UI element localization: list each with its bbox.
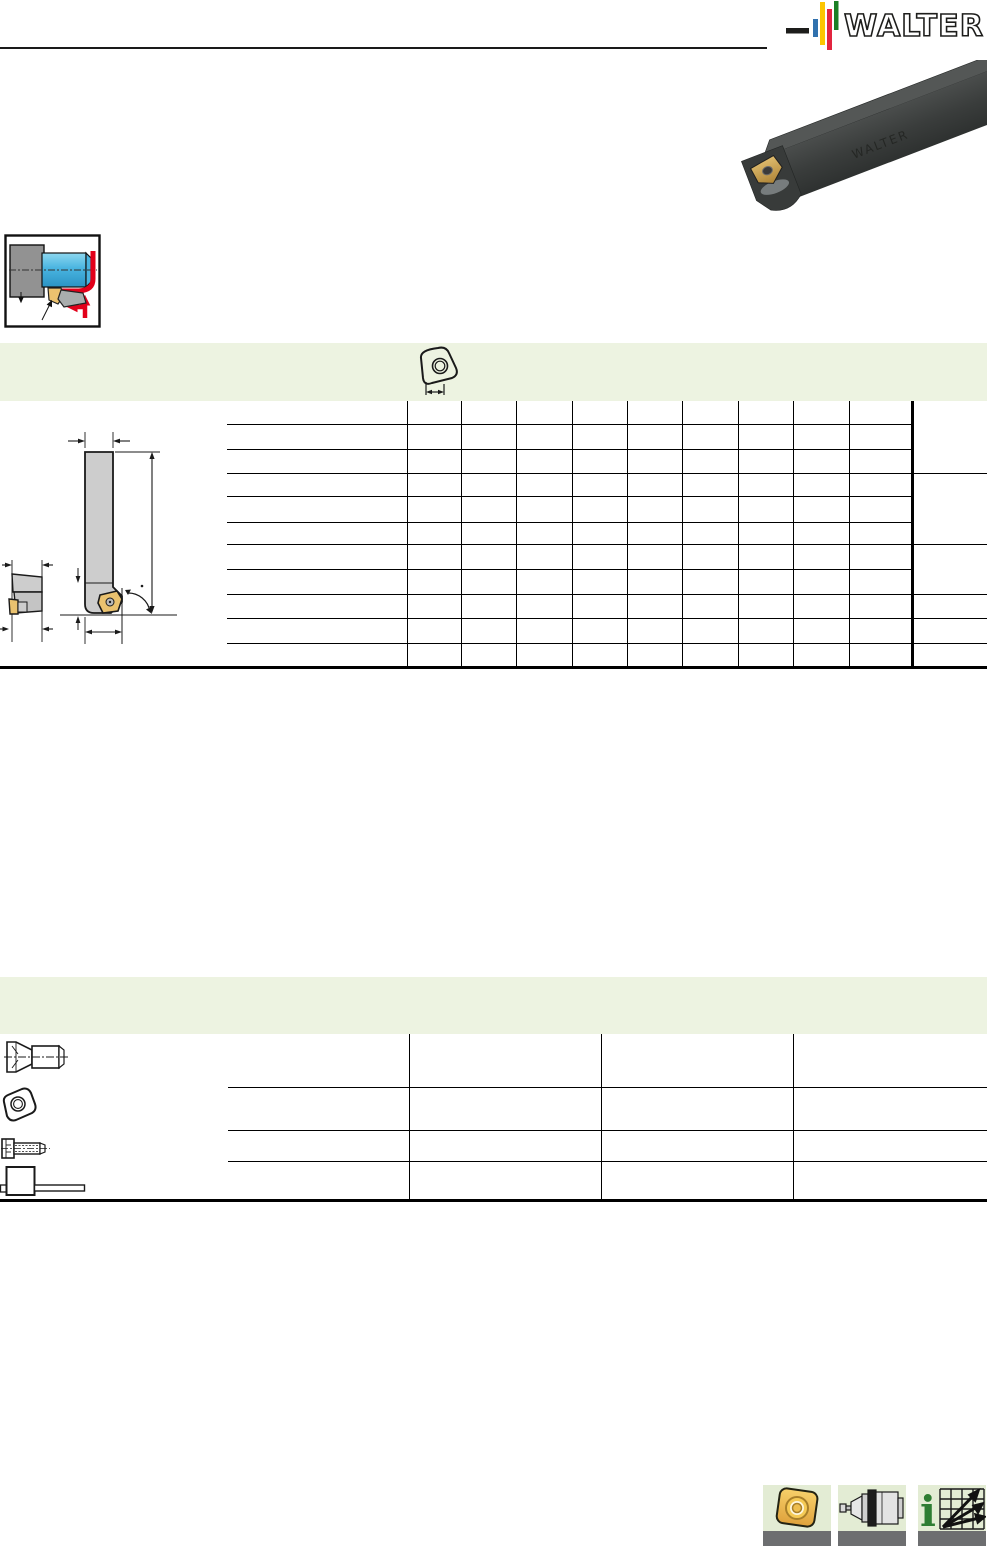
grid-line	[793, 401, 794, 667]
grid-line	[682, 401, 683, 667]
trigon-insert-dimension-icon	[416, 345, 464, 397]
trigon-insert-icon	[2, 1086, 38, 1128]
grid-line	[572, 401, 573, 667]
catalog-page: WALTER WALTER	[0, 0, 987, 1547]
grid-line	[227, 569, 912, 570]
grid-line	[227, 544, 912, 545]
cutting-data-info-icon-tile: i	[918, 1485, 986, 1546]
grid-line	[227, 473, 912, 474]
countersunk-screw-icon	[4, 1038, 70, 1078]
logo-bar-blue	[813, 19, 818, 37]
grid-line	[849, 401, 850, 667]
technical-drawing	[0, 420, 230, 670]
spec-table-header-banner	[0, 343, 987, 401]
grid-line	[911, 401, 914, 667]
product-photo-toolholder: WALTER	[740, 60, 987, 220]
clamping-screw-icon	[1, 1137, 51, 1161]
cutting-data-info-icon: i	[918, 1485, 986, 1531]
grid-line	[227, 594, 912, 595]
torque-wrench-icon	[0, 1165, 90, 1199]
turning-application-pictogram	[4, 234, 101, 328]
grid-line	[0, 1199, 987, 1202]
grid-line	[227, 496, 912, 497]
tile-bar	[838, 1531, 906, 1546]
grid-line	[227, 522, 912, 523]
grid-line	[793, 1034, 794, 1200]
grid-line	[0, 666, 987, 669]
grid-line	[516, 401, 517, 667]
logo-wordmark: WALTER	[844, 9, 984, 44]
grid-line	[738, 401, 739, 667]
grid-line	[227, 424, 912, 425]
grid-line	[227, 618, 912, 619]
front-view-body	[12, 574, 42, 592]
logo-dash	[786, 28, 809, 34]
spare-parts-banner	[0, 977, 987, 1034]
info-glyph: i	[920, 1487, 936, 1531]
grid-line	[228, 1087, 987, 1088]
tile-bar	[918, 1531, 986, 1546]
tool-adapter-icon	[838, 1485, 906, 1531]
grid-line	[912, 544, 987, 545]
grid-line	[627, 401, 628, 667]
grid-line	[461, 401, 462, 667]
logo-bar-red	[827, 9, 832, 50]
grid-line	[912, 594, 987, 595]
grid-line	[228, 1130, 987, 1131]
chuck	[10, 245, 44, 297]
indexable-insert-icon-tile	[763, 1485, 831, 1546]
side-view-shank	[85, 452, 122, 613]
walter-logo: WALTER	[783, 0, 987, 52]
toolholder-shank: WALTER	[740, 60, 987, 218]
logo-bar-yellow	[820, 2, 825, 45]
tile-bar	[763, 1531, 831, 1546]
lead-angle-arc	[127, 593, 150, 612]
grid-line	[407, 401, 408, 667]
grid-line	[912, 643, 987, 644]
header-rule	[0, 47, 767, 49]
logo-bar-green	[834, 1, 839, 30]
indexable-insert-icon	[763, 1485, 831, 1531]
grid-line	[409, 1034, 410, 1200]
front-view-insert	[9, 599, 18, 614]
grid-line	[601, 1034, 602, 1200]
grid-line	[227, 643, 912, 644]
grid-line	[912, 618, 987, 619]
tool-adapter-icon-tile	[838, 1485, 906, 1546]
grid-line	[228, 1161, 987, 1162]
grid-line	[227, 449, 912, 450]
grid-line	[912, 473, 987, 474]
